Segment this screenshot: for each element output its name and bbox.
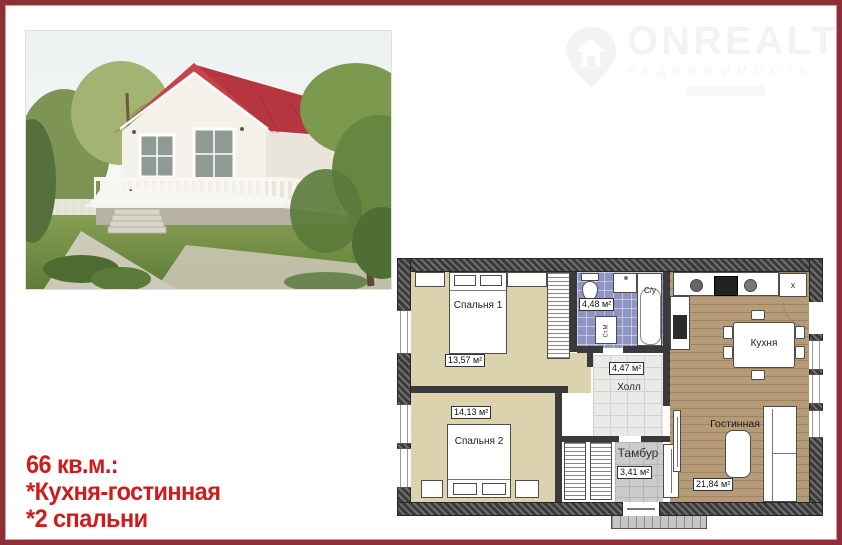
agency-watermark: ONREALT НЕДВИЖИМОСТЬ — [563, 20, 827, 112]
pillow — [453, 483, 477, 495]
washing-machine-label: Ст.М — [604, 324, 610, 337]
wall-corridor-hall — [587, 353, 593, 367]
kitchen-window-b — [809, 374, 823, 404]
wall-bath-bottom-b — [623, 346, 667, 353]
location-pin-house-icon — [563, 24, 619, 90]
chair — [795, 326, 805, 339]
sink-icon — [744, 279, 757, 292]
door-panel-line — [671, 449, 672, 493]
faucet-icon — [690, 279, 703, 292]
chair — [723, 346, 733, 359]
bedroom2-window-a — [397, 404, 411, 444]
bedroom1-dresser-left — [415, 272, 445, 287]
house-photo — [25, 30, 392, 290]
chair — [795, 346, 805, 359]
toilet-tank — [581, 273, 599, 281]
nightstand-right — [515, 480, 539, 498]
area-living: 21,84 м² — [693, 478, 733, 491]
bath-sink — [613, 273, 637, 293]
blanket-line — [448, 479, 510, 480]
pillow — [482, 483, 506, 495]
terrace-door-opening — [809, 302, 823, 334]
bedroom1-bed — [449, 272, 507, 354]
floor-plan: Спальня 1 13,57 м² С/у 4,48 м² Ст.М x Ку… — [397, 258, 823, 530]
bathtub — [637, 273, 662, 346]
chair — [751, 310, 765, 320]
area-bedroom2: 14,13 м² — [451, 406, 491, 419]
fridge: x — [779, 273, 807, 297]
room-label-living: Гостинная — [703, 418, 767, 430]
oven-icon — [673, 315, 687, 339]
feature-item-kitchen-living: *Кухня-гостинная — [26, 479, 220, 506]
pillow — [480, 275, 502, 286]
wall-bottom-right — [659, 502, 823, 516]
feature-title: 66 кв.м.: — [26, 452, 220, 479]
bathtub-basin — [640, 288, 661, 345]
sofa — [763, 406, 797, 502]
feature-list: 66 кв.м.: *Кухня-гостинная *2 спальни — [26, 452, 220, 533]
fridge-mark: x — [791, 280, 796, 290]
bedroom1-window — [397, 310, 411, 354]
kitchen-cabinet-column — [670, 296, 690, 350]
living-window — [809, 410, 823, 438]
area-bathroom: 4,48 м² — [579, 298, 614, 311]
tv-unit — [673, 410, 681, 472]
pillow — [454, 275, 476, 286]
wall-above-vestibule — [641, 436, 670, 442]
chair — [723, 326, 733, 339]
wall-bath-kitchen — [663, 272, 670, 350]
sofa-cushion-line — [773, 453, 796, 454]
area-vestibule: 3,41 м² — [617, 466, 652, 479]
area-hall: 4,47 м² — [609, 362, 644, 375]
kitchen-window-a — [809, 340, 823, 370]
tv-screen-line — [677, 417, 678, 467]
kitchen-counter — [673, 272, 779, 296]
wall-bedroom2-closets — [555, 393, 562, 502]
house-photo-illustration — [26, 31, 391, 289]
coffee-table — [725, 430, 751, 478]
bedroom1-wardrobe — [547, 272, 570, 359]
porch-steps — [108, 209, 166, 233]
room-label-kitchen: Кухня — [733, 338, 795, 349]
wall-bottom-left — [397, 502, 623, 516]
blanket-line — [450, 290, 506, 291]
watermark-brand: ONREALT — [627, 20, 838, 62]
area-bedroom1: 13,57 м² — [445, 354, 485, 367]
clipped-text-line — [60, 539, 232, 543]
bedroom2-window-b — [397, 448, 411, 488]
bedroom1-dresser-right — [507, 272, 547, 287]
nightstand-left — [421, 480, 443, 498]
room-label-bedroom2: Спальня 2 — [441, 436, 517, 447]
feature-item-bedrooms: *2 спальни — [26, 506, 220, 533]
wall-top — [397, 258, 823, 272]
entry-steps — [611, 516, 707, 529]
room-label-hall: Холл — [607, 382, 651, 393]
room-label-bathroom: С/у — [638, 286, 662, 295]
watermark-sub-mark — [687, 86, 765, 96]
sofa-seam — [772, 409, 773, 501]
wall-bath-bottom-a — [577, 346, 603, 353]
chair — [751, 370, 765, 380]
wall-bedroom1-bath — [570, 272, 577, 352]
sink-drain — [624, 276, 628, 280]
stove-icon — [714, 276, 738, 296]
entry-door-leaf — [627, 508, 655, 510]
room-label-bedroom1: Спальня 1 — [447, 300, 509, 311]
wall-hall-living — [663, 350, 670, 406]
closet-a — [564, 442, 586, 500]
watermark-tagline: НЕДВИЖИМОСТЬ — [627, 64, 838, 78]
room-label-vestibule: Тамбур — [609, 446, 667, 460]
wall-bedrooms-divider — [411, 386, 568, 393]
washing-machine: Ст.М — [595, 316, 617, 344]
